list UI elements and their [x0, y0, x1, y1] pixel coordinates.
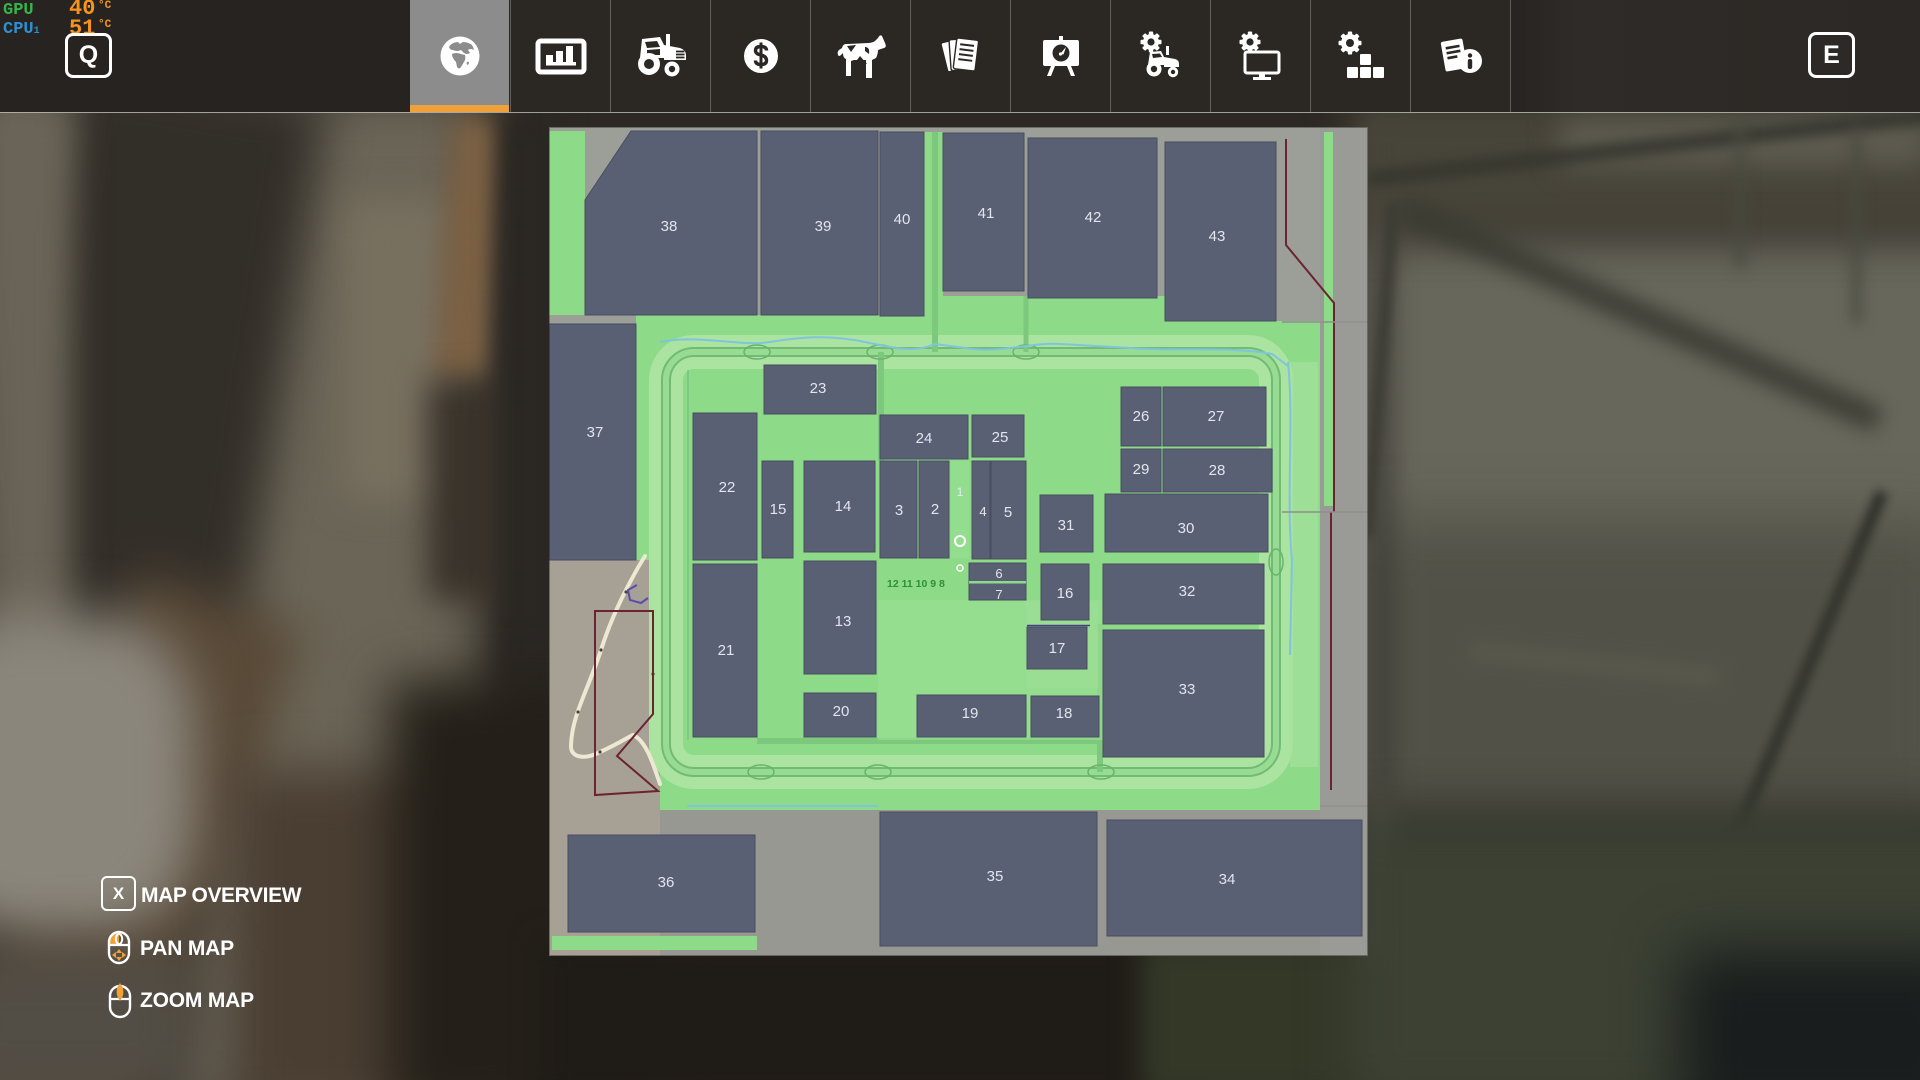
svg-text:22: 22: [719, 479, 736, 496]
svg-text:35: 35: [987, 868, 1004, 885]
svg-text:24: 24: [916, 430, 933, 447]
svg-text:21: 21: [718, 642, 735, 659]
svg-text:6: 6: [995, 566, 1002, 581]
svg-text:39: 39: [815, 218, 832, 235]
svg-text:41: 41: [978, 205, 995, 222]
svg-text:30: 30: [1178, 520, 1195, 537]
svg-text:33: 33: [1179, 681, 1196, 698]
svg-text:18: 18: [1056, 705, 1073, 722]
svg-text:42: 42: [1085, 209, 1102, 226]
svg-text:15: 15: [770, 501, 787, 518]
svg-text:36: 36: [658, 874, 675, 891]
svg-text:20: 20: [833, 703, 850, 720]
svg-text:7: 7: [995, 587, 1002, 602]
svg-text:16: 16: [1057, 585, 1074, 602]
svg-text:13: 13: [835, 613, 852, 630]
svg-text:2: 2: [931, 501, 939, 518]
svg-text:5: 5: [1004, 504, 1012, 521]
svg-text:43: 43: [1209, 228, 1226, 245]
svg-text:26: 26: [1133, 408, 1150, 425]
svg-text:12 11 10 9 8: 12 11 10 9 8: [887, 578, 945, 590]
svg-text:1: 1: [957, 485, 964, 499]
svg-text:27: 27: [1208, 408, 1225, 425]
svg-text:4: 4: [979, 504, 986, 519]
svg-text:17: 17: [1049, 640, 1066, 657]
svg-text:34: 34: [1219, 871, 1236, 888]
svg-text:31: 31: [1058, 517, 1075, 534]
svg-text:40: 40: [894, 211, 911, 228]
svg-text:3: 3: [895, 502, 903, 519]
svg-text:37: 37: [587, 424, 604, 441]
svg-text:23: 23: [810, 380, 827, 397]
svg-text:38: 38: [661, 218, 678, 235]
svg-text:29: 29: [1133, 461, 1150, 478]
svg-text:14: 14: [835, 498, 852, 515]
svg-text:25: 25: [992, 429, 1009, 446]
svg-text:19: 19: [962, 705, 979, 722]
svg-text:32: 32: [1179, 583, 1196, 600]
svg-text:28: 28: [1209, 462, 1226, 479]
